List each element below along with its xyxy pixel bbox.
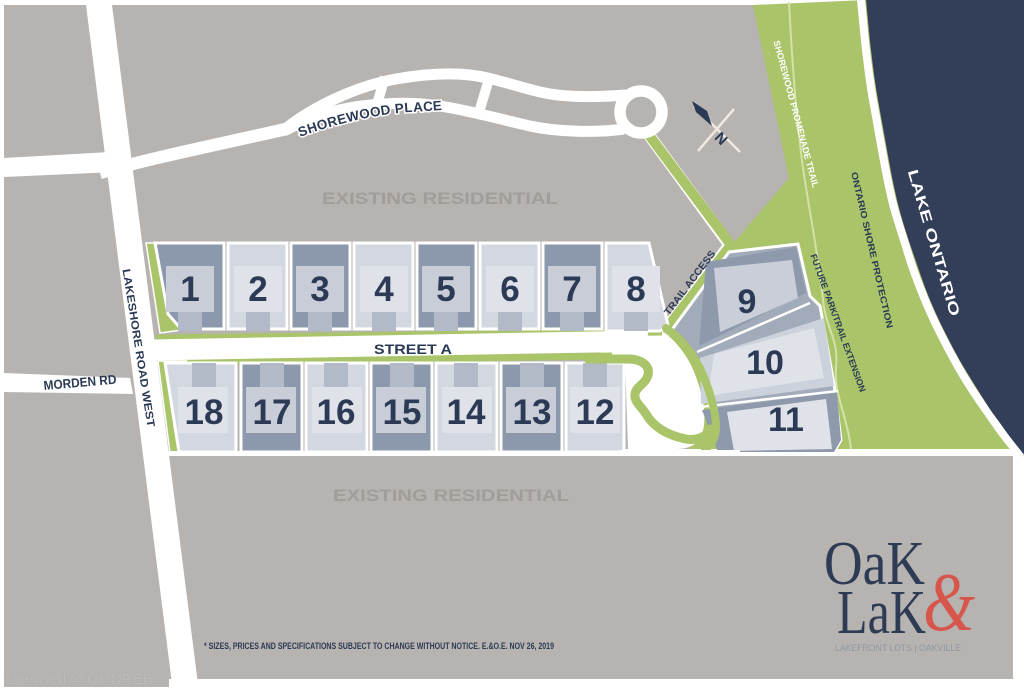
svg-text:5: 5 xyxy=(436,270,455,309)
svg-text:9: 9 xyxy=(738,283,757,321)
svg-text:16: 16 xyxy=(317,393,356,432)
svg-text:STREET A: STREET A xyxy=(374,341,452,357)
svg-text:LaK: LaK xyxy=(837,579,926,647)
svg-text:LAKEFRONT LOTS | OAKVILLE: LAKEFRONT LOTS | OAKVILLE xyxy=(835,643,961,654)
svg-text:&: & xyxy=(923,556,976,649)
svg-text:18: 18 xyxy=(185,393,224,432)
svg-text:6: 6 xyxy=(500,270,519,309)
svg-text:Licensed to OMDREB: Licensed to OMDREB xyxy=(6,671,153,688)
svg-text:2: 2 xyxy=(248,270,267,309)
svg-text:7: 7 xyxy=(562,270,581,309)
svg-text:10: 10 xyxy=(746,344,784,382)
svg-text:11: 11 xyxy=(768,401,804,439)
svg-text:EXISTING RESIDENTIAL: EXISTING RESIDENTIAL xyxy=(322,190,558,208)
svg-text:* SIZES, PRICES AND SPECIFICAT: * SIZES, PRICES AND SPECIFICATIONS SUBJE… xyxy=(204,641,554,652)
svg-text:8: 8 xyxy=(626,270,645,309)
svg-text:4: 4 xyxy=(374,270,394,309)
svg-text:12: 12 xyxy=(576,393,615,432)
svg-text:17: 17 xyxy=(253,393,292,432)
svg-text:14: 14 xyxy=(447,393,486,432)
svg-text:1: 1 xyxy=(180,270,199,309)
svg-text:13: 13 xyxy=(513,393,552,432)
svg-text:3: 3 xyxy=(310,270,329,309)
svg-text:EXISTING RESIDENTIAL: EXISTING RESIDENTIAL xyxy=(333,487,569,505)
svg-text:15: 15 xyxy=(383,393,422,432)
